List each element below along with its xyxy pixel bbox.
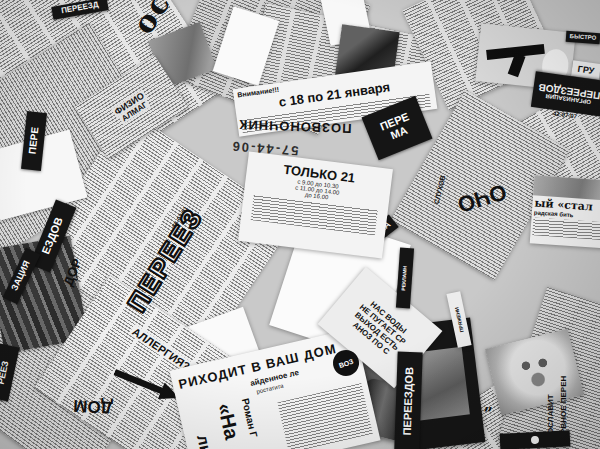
left-pere-banner-text: ПЕРЕ <box>27 127 40 155</box>
tolko-fineprint <box>251 194 378 235</box>
pozvonochnik-text: ПОЗВОНОЧНИК <box>238 118 352 137</box>
nervnoe-text: НЕРВНОЕ ПЕРЕН <box>559 295 568 445</box>
quote-mark-text: ” <box>483 404 492 423</box>
proslavit-text: ПРОСЛАВИТ <box>546 295 555 445</box>
bystro-banner: БЫСТРО <box>566 31 600 44</box>
pozvonochnik-headline: ПОЗВОНОЧНИК <box>235 113 356 141</box>
ocho-text: ОЧО <box>454 178 509 217</box>
pereez-outline-text: ПЕРЕЕЗ <box>121 202 209 317</box>
dom-text: ДОМ <box>73 395 113 417</box>
left-bottom-banner-text: РЕЕЗ <box>0 360 11 385</box>
stalingrad-scrap: ый «стал радская бить <box>530 175 600 248</box>
quote-mark: ” <box>478 405 498 421</box>
nervnoe-vertical-group: ПРОСЛАВИТ НЕРВНОЕ ПЕРЕН <box>546 295 576 445</box>
reklama-text: РЕКЛАМН <box>402 266 409 291</box>
lyu-vertical: лю <box>193 433 216 449</box>
pereezdov-vertical-text: ПЕРЕЕЗДОВ <box>402 367 416 436</box>
roman-vertical: Роман Г <box>240 397 260 438</box>
prihodit-body-text <box>277 383 372 449</box>
reklama-strip: РЕКЛАМН <box>396 248 414 309</box>
org-phone-text: 42-07-07 <box>553 110 578 119</box>
stalingrad-body-text <box>532 217 600 240</box>
pereezdov-vertical-banner: ПЕРЕЕЗДОВ <box>394 352 422 449</box>
tolko-ad: ТОЛЬКО 21 с 9.00 до 10.30 с 11.00 до 14.… <box>238 151 393 258</box>
bottom-bar-dot <box>531 436 539 444</box>
na-quote-vertical: «На <box>213 401 244 442</box>
bottom-black-bar <box>500 430 571 449</box>
newspaper-collage: осква ПЕРЕЕЗД Кв ФИЗИО АЛМАГ ПЕРЕ Вниман… <box>0 0 600 449</box>
gru-text: ГРУ <box>577 64 595 76</box>
phone-upside-text: 57-44-06 <box>230 139 299 159</box>
pryazheni-text: ПРЯЖЕНИ <box>453 306 464 332</box>
voz-text: ВОЗ <box>338 357 354 369</box>
bystro-text: БЫСТРО <box>570 33 597 41</box>
dom-upside: ДОМ <box>67 389 119 424</box>
phone-upside: 57-44-06 <box>221 137 307 161</box>
